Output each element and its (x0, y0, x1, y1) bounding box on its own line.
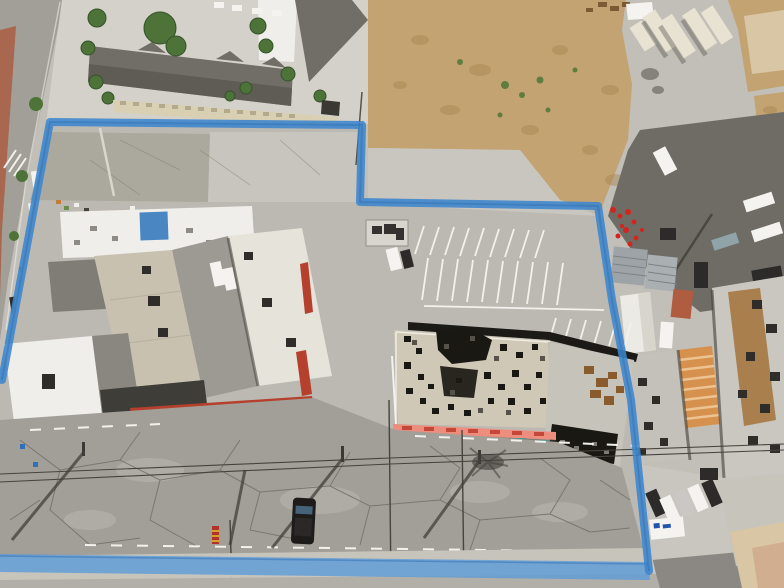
ladder-object (212, 526, 219, 544)
dark-shed-roof (321, 100, 340, 116)
white-truck-mid (659, 322, 674, 349)
parked-suv (291, 497, 316, 544)
hvac-sw (42, 374, 55, 389)
weathered-green-patch (30, 132, 210, 202)
red-shed-roof (671, 289, 694, 319)
apartment-complex (46, 0, 368, 127)
white-trailer (649, 516, 685, 539)
aerial-scene (0, 0, 784, 588)
bottom-right-block (636, 464, 784, 588)
aerial-property-photo (0, 0, 784, 588)
dumpster (700, 468, 718, 480)
blue-tarp (140, 212, 169, 241)
